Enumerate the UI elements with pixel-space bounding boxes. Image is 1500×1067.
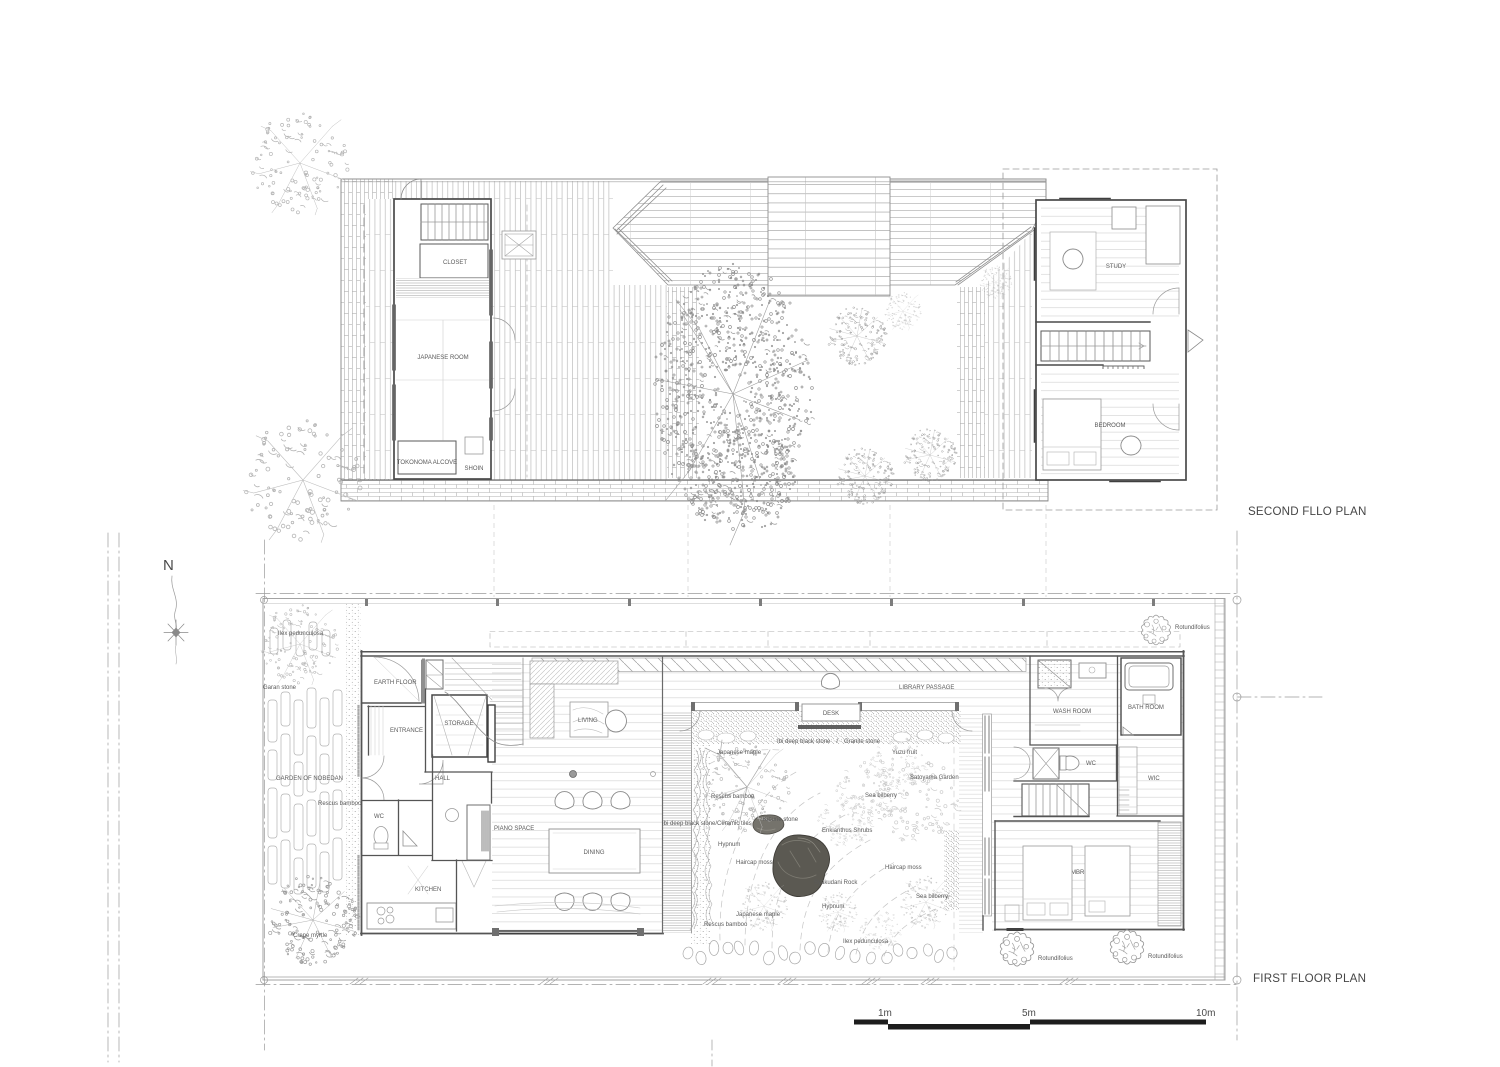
svg-text:Sea bilberry: Sea bilberry bbox=[865, 793, 897, 799]
svg-text:BATH ROOM: BATH ROOM bbox=[1128, 705, 1164, 711]
svg-text:Rescus bamboo: Rescus bamboo bbox=[318, 801, 362, 807]
svg-text:STORAGE: STORAGE bbox=[444, 721, 473, 727]
svg-text:Rescus bamboo: Rescus bamboo bbox=[704, 922, 748, 928]
svg-text:10m: 10m bbox=[1196, 1008, 1215, 1019]
svg-text:Sea bilberry: Sea bilberry bbox=[916, 894, 948, 900]
svg-text:Haircap moss: Haircap moss bbox=[885, 865, 922, 871]
svg-text:Garan stone: Garan stone bbox=[263, 685, 297, 691]
svg-text:Rescus bamboo: Rescus bamboo bbox=[711, 794, 755, 800]
svg-text:KITCHEN: KITCHEN bbox=[415, 887, 441, 893]
svg-text:SHOIN: SHOIN bbox=[464, 466, 483, 472]
svg-text:Japanese maple: Japanese maple bbox=[717, 750, 762, 756]
svg-text:TOKONOMA ALCOVE: TOKONOMA ALCOVE bbox=[397, 460, 457, 466]
svg-text:Ibi deep black stone/Ceramic t: Ibi deep black stone/Ceramic tiles bbox=[662, 821, 752, 827]
svg-text:Hypnum: Hypnum bbox=[822, 904, 844, 910]
svg-text:5m: 5m bbox=[1022, 1008, 1036, 1019]
svg-text:JAPANESE ROOM: JAPANESE ROOM bbox=[417, 355, 468, 361]
svg-text:Ibi deep black stone / Granite: Ibi deep black stone / Granite stone bbox=[777, 739, 881, 745]
svg-text:DESK: DESK bbox=[823, 711, 839, 717]
svg-text:Rotundifolius: Rotundifolius bbox=[1175, 625, 1210, 631]
svg-text:STUDY: STUDY bbox=[1106, 264, 1126, 270]
svg-text:WASH ROOM: WASH ROOM bbox=[1053, 709, 1091, 715]
svg-text:LIBRARY PASSAGE: LIBRARY PASSAGE bbox=[899, 685, 954, 691]
svg-text:EARTH FLOOR: EARTH FLOOR bbox=[374, 680, 417, 686]
svg-text:DINING: DINING bbox=[584, 850, 605, 856]
svg-text:WIC: WIC bbox=[1148, 776, 1160, 782]
svg-text:ENTRANCE: ENTRANCE bbox=[390, 728, 423, 734]
svg-text:Haircap moss: Haircap moss bbox=[736, 860, 773, 866]
svg-text:WC: WC bbox=[1086, 761, 1097, 767]
svg-text:Ilex pedunculosa: Ilex pedunculosa bbox=[278, 631, 324, 637]
svg-text:Ilex pedunculosa: Ilex pedunculosa bbox=[843, 939, 889, 945]
svg-text:CLOSET: CLOSET bbox=[443, 260, 467, 266]
svg-text:LIVING: LIVING bbox=[578, 718, 598, 724]
svg-text:PIANO SPACE: PIANO SPACE bbox=[494, 826, 534, 832]
svg-text:Rotundifolius: Rotundifolius bbox=[1148, 954, 1183, 960]
svg-text:N: N bbox=[163, 557, 174, 574]
svg-text:FIRST FLOOR PLAN: FIRST FLOOR PLAN bbox=[1253, 972, 1366, 985]
svg-text:Satoyama Garden: Satoyama Garden bbox=[910, 775, 959, 781]
svg-text:BEDROOM: BEDROOM bbox=[1094, 423, 1125, 429]
svg-text:Yuzu fruit: Yuzu fruit bbox=[892, 750, 917, 756]
svg-text:1m: 1m bbox=[878, 1008, 892, 1019]
svg-text:Japanese maple: Japanese maple bbox=[736, 912, 781, 918]
svg-text:WC: WC bbox=[374, 814, 385, 820]
svg-text:GARDEN OF NOBEDAN: GARDEN OF NOBEDAN bbox=[276, 776, 343, 782]
svg-text:Kibune stone: Kibune stone bbox=[763, 817, 799, 823]
svg-text:Rotundifolius: Rotundifolius bbox=[1038, 956, 1073, 962]
svg-text:Crape myrtle: Crape myrtle bbox=[293, 933, 328, 939]
svg-text:MBR: MBR bbox=[1071, 870, 1085, 876]
svg-text:Syakudani Rock: Syakudani Rock bbox=[814, 880, 858, 886]
svg-text:SECOND FLLO PLAN: SECOND FLLO PLAN bbox=[1248, 505, 1367, 518]
svg-text:Enkianthus Shrubs: Enkianthus Shrubs bbox=[822, 828, 872, 834]
svg-text:Hypnum: Hypnum bbox=[718, 842, 740, 848]
